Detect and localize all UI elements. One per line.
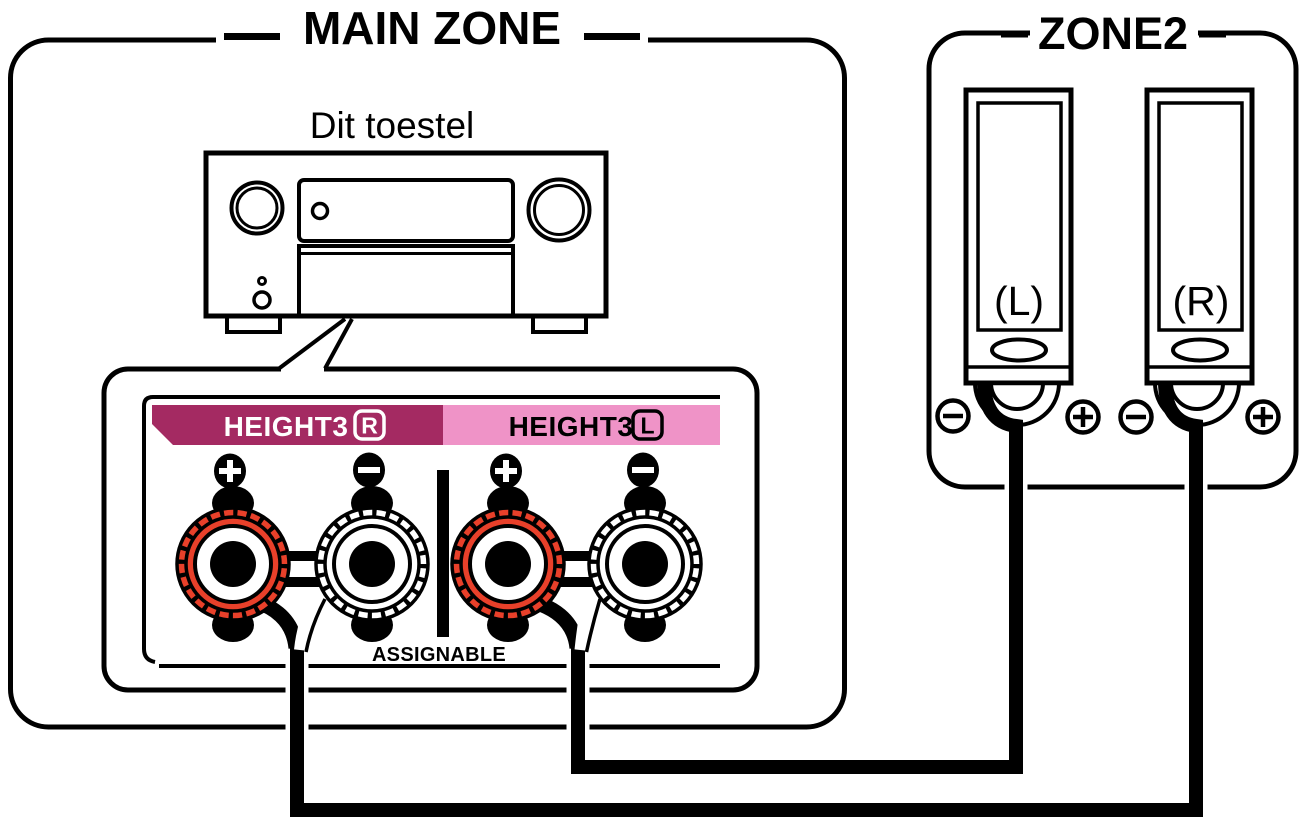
connection-diagram: MAIN ZONE ZONE2 Dit toestel bbox=[0, 0, 1310, 823]
plus-polarity-badge bbox=[214, 454, 246, 489]
plus-terminal-icon bbox=[1068, 402, 1099, 433]
title-dash-left bbox=[224, 33, 280, 40]
plus-terminal-icon bbox=[1248, 402, 1279, 433]
speaker-l-label: (L) bbox=[994, 278, 1044, 324]
height3-r-label-bar: HEIGHT3 R bbox=[152, 405, 443, 445]
title-dash-right bbox=[1199, 31, 1226, 38]
minus-terminal-icon bbox=[1121, 402, 1152, 433]
height3-l-label-bar: HEIGHT3 L bbox=[443, 405, 720, 445]
title-dash-right bbox=[584, 33, 640, 40]
speaker-r-label: (R) bbox=[1173, 278, 1230, 324]
assignable-label: ASSIGNABLE bbox=[372, 644, 506, 666]
minus-polarity-badge bbox=[627, 453, 659, 488]
channel-l-letter: L bbox=[640, 413, 654, 439]
device-label: Dit toestel bbox=[310, 105, 475, 146]
zone2-title: ZONE2 bbox=[1038, 8, 1188, 59]
zone2-speaker-right: (R) bbox=[1147, 90, 1252, 425]
plus-polarity-badge bbox=[490, 454, 522, 489]
diagram-canvas: MAIN ZONE ZONE2 Dit toestel bbox=[0, 0, 1310, 823]
speaker-port bbox=[992, 340, 1046, 361]
main-zone-title: MAIN ZONE bbox=[303, 2, 561, 54]
minus-terminal-icon bbox=[938, 401, 969, 432]
minus-polarity-badge bbox=[353, 453, 385, 488]
zone2-speaker-left: (L) bbox=[966, 90, 1071, 425]
speaker-port bbox=[1173, 340, 1227, 361]
receiver-illustration: Dit toestel bbox=[206, 105, 606, 332]
height3-r-label: HEIGHT3 bbox=[224, 411, 349, 442]
terminal-pair-divider bbox=[437, 470, 449, 637]
title-dash-left bbox=[1001, 31, 1028, 38]
callout-line-right bbox=[325, 319, 352, 369]
channel-r-letter: R bbox=[361, 413, 378, 439]
height3-l-label: HEIGHT3 bbox=[509, 411, 634, 442]
